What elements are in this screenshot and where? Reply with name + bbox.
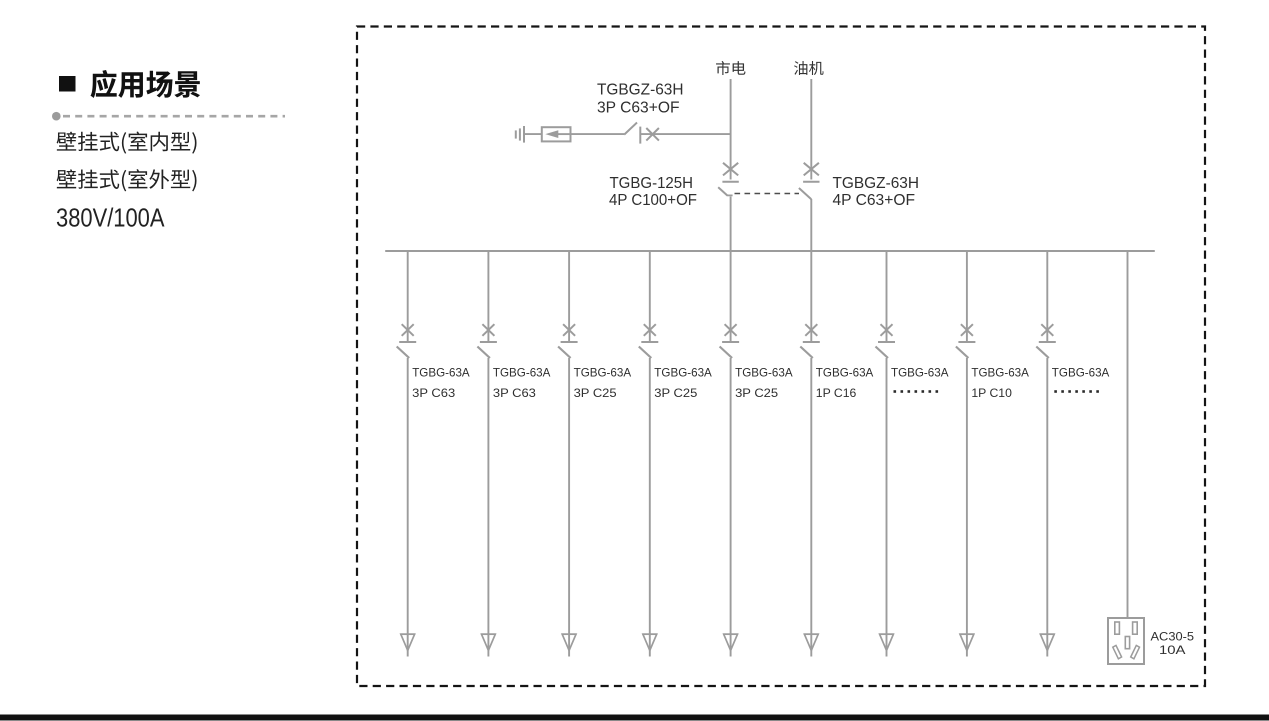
svg-text:380V/100A: 380V/100A [56,203,165,233]
svg-text:4P C100+OF: 4P C100+OF [609,192,697,209]
svg-text:TGBG-63A: TGBG-63A [574,366,632,380]
svg-text:1P C16: 1P C16 [816,386,857,400]
svg-text:TGBG-63A: TGBG-63A [735,366,793,380]
svg-text:10A: 10A [1159,643,1186,657]
svg-text:AC30-5: AC30-5 [1151,629,1195,643]
svg-text:3P C63: 3P C63 [412,386,455,400]
svg-text:4P C63+OF: 4P C63+OF [833,192,916,209]
svg-text:3P C25: 3P C25 [654,386,697,400]
svg-text:1P C10: 1P C10 [971,386,1012,400]
svg-text:TGBG-63A: TGBG-63A [493,366,551,380]
svg-text:3P C25: 3P C25 [735,386,778,400]
svg-text:TGBG-63A: TGBG-63A [891,366,949,380]
svg-text:TGBGZ-63H: TGBGZ-63H [597,82,684,99]
svg-text:TGBG-63A: TGBG-63A [971,366,1029,380]
svg-text:TGBG-63A: TGBG-63A [1052,366,1110,380]
svg-text:3P C63+OF: 3P C63+OF [597,100,680,117]
svg-text:TGBG-63A: TGBG-63A [412,366,470,380]
svg-text:3P C63: 3P C63 [493,386,536,400]
svg-text:3P C25: 3P C25 [574,386,617,400]
svg-text:TGBG-63A: TGBG-63A [654,366,712,380]
svg-text:TGBGZ-63H: TGBGZ-63H [833,175,920,192]
svg-text:TGBG-63A: TGBG-63A [816,366,874,380]
svg-text:TGBG-125H: TGBG-125H [610,175,694,192]
